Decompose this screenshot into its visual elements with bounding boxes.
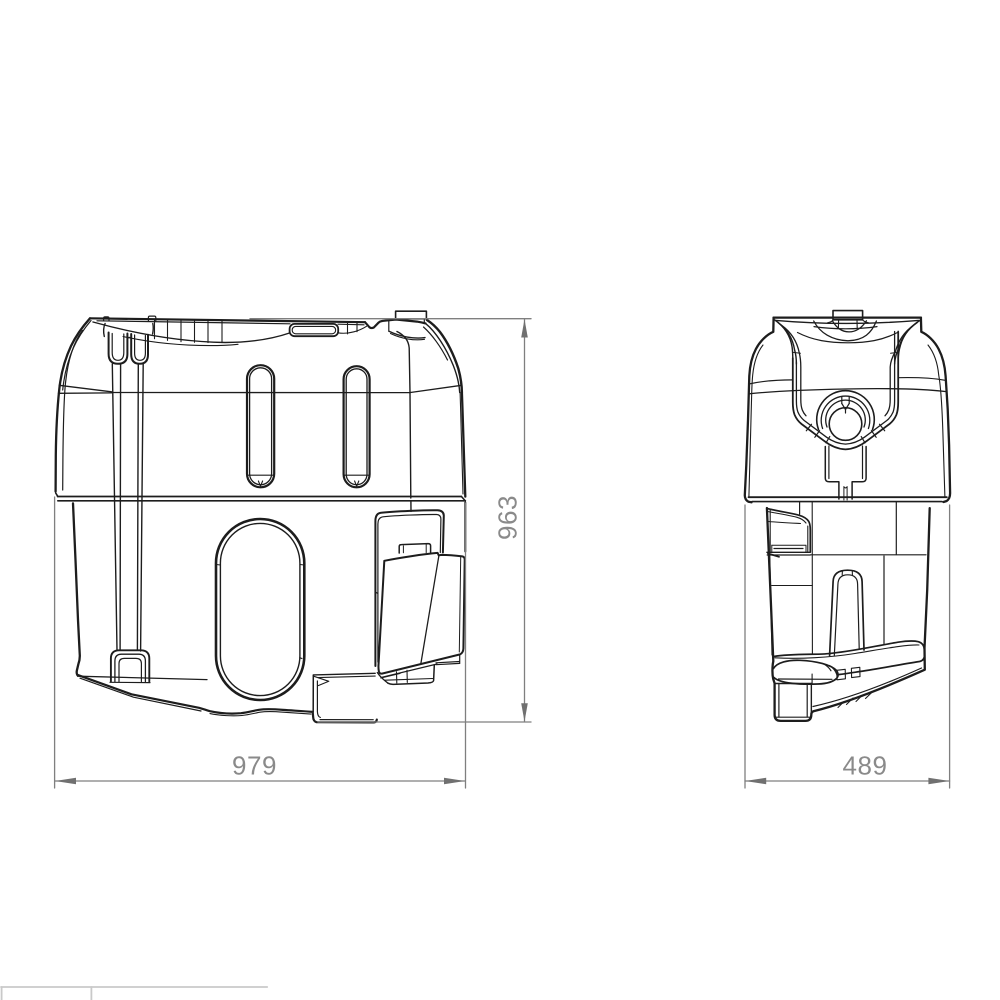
svg-text:489: 489 — [843, 751, 888, 781]
svg-text:963: 963 — [493, 495, 523, 540]
svg-text:979: 979 — [232, 751, 277, 781]
